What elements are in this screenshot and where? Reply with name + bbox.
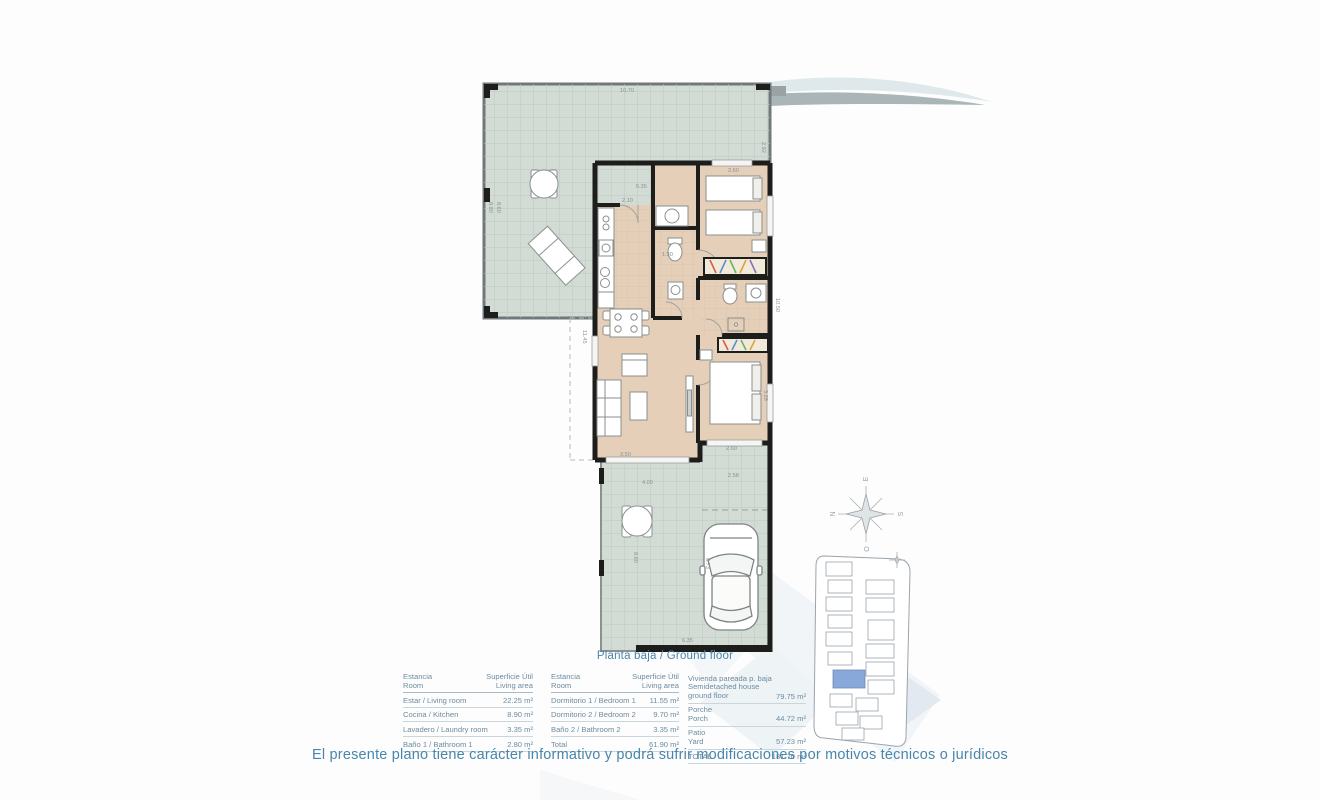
- svg-text:8.60: 8.60: [495, 202, 501, 213]
- table-row: Lavadero / Laundry room3.35 m²: [403, 722, 533, 737]
- svg-text:8.73: 8.73: [704, 558, 710, 569]
- svg-text:O: O: [864, 546, 871, 552]
- table-row: Cocina / Kitchen8.90 m²: [403, 708, 533, 723]
- site-plan-minimap: [814, 552, 910, 746]
- table-row: Baño 2 / Bathroom 23.35 m²: [551, 722, 679, 737]
- svg-text:3.28: 3.28: [762, 390, 768, 401]
- table-row: Dormitorio 2 / Bedroom 29.70 m²: [551, 708, 679, 723]
- highlighted-unit: [833, 670, 865, 688]
- terrace-table-icon: [530, 170, 558, 198]
- svg-text:N: N: [830, 511, 837, 516]
- swoosh-graphic: [770, 78, 992, 106]
- svg-text:2.60: 2.60: [726, 446, 737, 452]
- header-area-es: Superficie Útil: [486, 672, 533, 681]
- svg-text:8.80: 8.80: [487, 202, 493, 213]
- svg-text:4.00: 4.00: [642, 480, 653, 486]
- svg-text:2.60: 2.60: [728, 168, 739, 174]
- header-area-en: Living area: [496, 681, 533, 690]
- svg-text:2.10: 2.10: [622, 198, 633, 204]
- table-row: Porche Porch 44.72 m²: [688, 704, 806, 727]
- table-row: Dormitorio 1 / Bedroom 111.55 m²: [551, 693, 679, 708]
- rooms-table-2: Estancia Room Superficie Útil Living are…: [551, 672, 679, 752]
- svg-text:6.35: 6.35: [682, 638, 693, 644]
- header-room-en: Room: [403, 681, 423, 690]
- car-icon: [700, 524, 762, 630]
- svg-text:11.45: 11.45: [581, 330, 587, 344]
- table-row: Estar / Living room22.25 m²: [403, 693, 533, 708]
- svg-text:2.58: 2.58: [728, 473, 739, 479]
- svg-text:10.70: 10.70: [620, 88, 634, 94]
- svg-text:2.92: 2.92: [760, 142, 766, 153]
- svg-text:S: S: [898, 511, 905, 516]
- table-header: Estancia Room Superficie Útil Living are…: [551, 672, 679, 693]
- table-row: Vivienda pareada p. baja Semidetached ho…: [688, 672, 806, 704]
- compass-icon: E N S O: [830, 476, 905, 551]
- svg-text:5.35: 5.35: [636, 184, 647, 190]
- plan-caption: Planta baja / Ground floor: [545, 650, 785, 662]
- svg-text:8.80: 8.80: [632, 552, 638, 563]
- header-room-es: Estancia: [403, 672, 432, 681]
- disclaimer-text: El presente plano tiene carácter informa…: [120, 747, 1200, 763]
- patio-table-icon: [622, 506, 652, 537]
- svg-text:10.50: 10.50: [774, 298, 780, 312]
- patio-area: [599, 443, 770, 652]
- svg-text:3.50: 3.50: [620, 452, 631, 458]
- floorplan-page: 10.70 2.92 8.80 8.60 5.35 2.10 2.60 1.30…: [0, 0, 1320, 800]
- table-header: Estancia Room Superficie Útil Living are…: [403, 672, 533, 693]
- svg-text:E: E: [863, 476, 870, 481]
- svg-text:1.30: 1.30: [662, 252, 673, 258]
- rooms-table-1: Estancia Room Superficie Útil Living are…: [403, 672, 533, 752]
